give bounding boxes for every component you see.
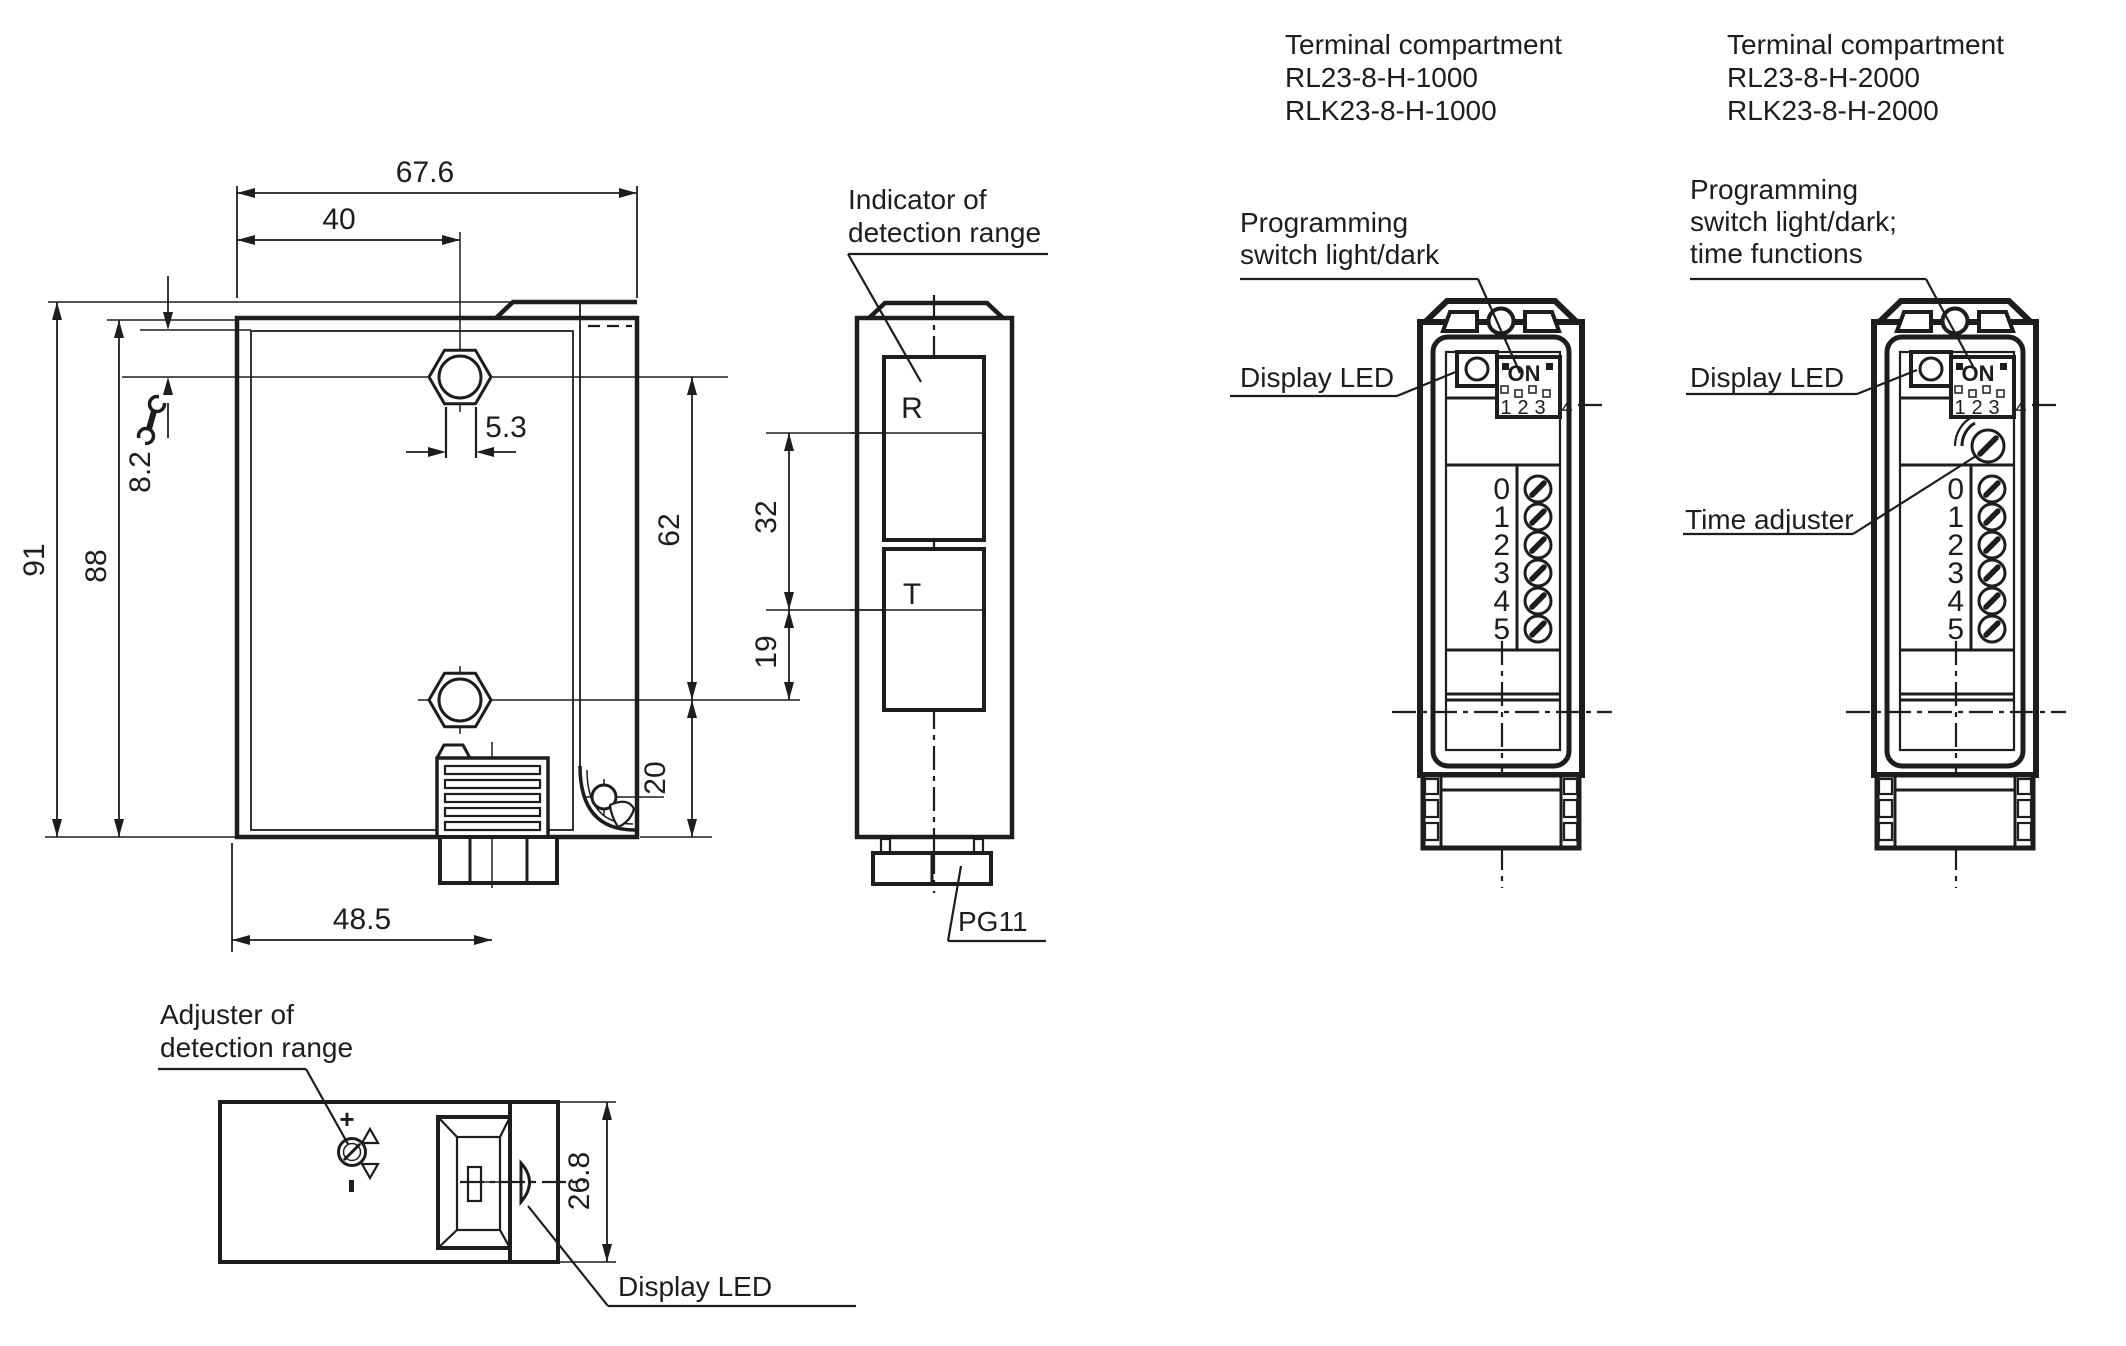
front-top-tab xyxy=(496,302,637,318)
adjuster-label-line1: Adjuster of xyxy=(160,999,294,1030)
indicator-label-line2: detection range xyxy=(848,217,1041,248)
device2-time-adjuster-label: Time adjuster xyxy=(1685,504,1854,535)
sensor-dimension-drawing-page: 67.6 40 5.3 xyxy=(0,0,2126,1346)
device1-dip-1: 1 xyxy=(1500,397,1511,419)
device1-display-led-label: Display LED xyxy=(1240,362,1394,393)
dim-8-2: 8.2 xyxy=(124,276,173,493)
technical-drawing-canvas: 67.6 40 5.3 xyxy=(0,0,2126,1346)
dim-26-8: 26.8 xyxy=(560,1102,616,1262)
indicator-label-line1: Indicator of xyxy=(848,184,987,215)
front-cable-gland xyxy=(440,837,557,883)
dim-62: 62 xyxy=(653,377,697,700)
device2-display-led-label: Display LED xyxy=(1690,362,1844,393)
dim-19: 19 xyxy=(750,610,794,700)
dim-91: 91 xyxy=(18,302,235,837)
upper-mounting-nut xyxy=(429,350,491,404)
front-view: 67.6 40 5.3 xyxy=(18,156,800,952)
dim-40: 40 xyxy=(237,203,460,245)
device2-programming-line3: time functions xyxy=(1690,238,1863,269)
device1-title-line2: RL23-8-H-1000 xyxy=(1285,62,1478,93)
cable-gland-label: PG11 xyxy=(958,906,1028,937)
min-position-mark xyxy=(349,1180,354,1192)
dim-67-6: 67.6 xyxy=(237,156,637,298)
device2-dip-3: 3 xyxy=(1988,397,1999,419)
device2-programming-line1: Programming xyxy=(1690,174,1858,205)
dim-width-value: 67.6 xyxy=(396,156,454,189)
dim-t-axis-value: 19 xyxy=(750,635,783,668)
dim-bottom-value: 20 xyxy=(639,761,672,794)
device2-programming-line2: switch light/dark; xyxy=(1690,206,1897,237)
side-view: R T PG11 Indicator of detection range xyxy=(639,184,1048,941)
device1-dip-4: 4 xyxy=(1561,397,1572,419)
device1-dip-on-label: ON xyxy=(1508,361,1541,386)
device2-title-line1: Terminal compartment xyxy=(1727,29,2004,60)
dim-slot-value: 5.3 xyxy=(485,411,527,444)
device1-programming-line1: Programming xyxy=(1240,207,1408,238)
side-cable-gland xyxy=(873,839,991,893)
device1-title-line1: Terminal compartment xyxy=(1285,29,1562,60)
dim-depth-value: 26.8 xyxy=(563,1152,596,1210)
dim-hole-span-value: 62 xyxy=(653,513,686,546)
transmitter-label: T xyxy=(903,578,921,611)
plus-mark: + xyxy=(339,1104,354,1134)
transmitter-window xyxy=(884,549,984,710)
device2-dip-4: 4 xyxy=(2015,397,2026,419)
dim-height-total-value: 91 xyxy=(18,543,51,576)
device1-programming-line2: switch light/dark xyxy=(1240,239,1440,270)
device2-title-line2: RL23-8-H-2000 xyxy=(1727,62,1920,93)
dim-top-offset-value: 8.2 xyxy=(124,451,157,493)
device2-title-line3: RLK23-8-H-2000 xyxy=(1727,95,1939,126)
lower-mounting-nut xyxy=(429,673,491,727)
receiver-label: R xyxy=(901,392,923,425)
terminal-compartment-1000: Terminal compartment RL23-8-H-1000 RLK23… xyxy=(1230,29,1612,888)
dim-32: 32 xyxy=(750,433,794,610)
receiver-window xyxy=(884,357,984,540)
device2-dip-2: 2 xyxy=(1971,397,1982,419)
device1-dip-2: 2 xyxy=(1517,397,1528,419)
dim-hole-x-value: 40 xyxy=(322,203,355,236)
adjuster-label-line2: detection range xyxy=(160,1032,353,1063)
device1-terminal-5: 5 xyxy=(1493,613,1510,646)
dim-height-face-value: 88 xyxy=(80,549,113,582)
device2-dip-on-label: ON xyxy=(1962,361,1995,386)
device2-dip-1: 1 xyxy=(1954,397,1965,419)
terminal-compartment-2000: Terminal compartment RL23-8-H-2000 RLK23… xyxy=(1683,29,2066,888)
display-led-callout-bottom: Display LED xyxy=(528,1206,856,1306)
bottom-view: + Adjuster of detection range Display LE… xyxy=(158,999,856,1306)
display-led-label-bottom: Display LED xyxy=(618,1271,772,1302)
device2-terminal-5: 5 xyxy=(1947,613,1964,646)
wrench-icon xyxy=(135,395,169,446)
dim-gland-x-value: 48.5 xyxy=(333,903,391,936)
device1-dip-3: 3 xyxy=(1534,397,1545,419)
dim-axis-span-value: 32 xyxy=(750,500,783,533)
device1-title-line3: RLK23-8-H-1000 xyxy=(1285,95,1497,126)
dim-20: 20 xyxy=(639,700,712,837)
